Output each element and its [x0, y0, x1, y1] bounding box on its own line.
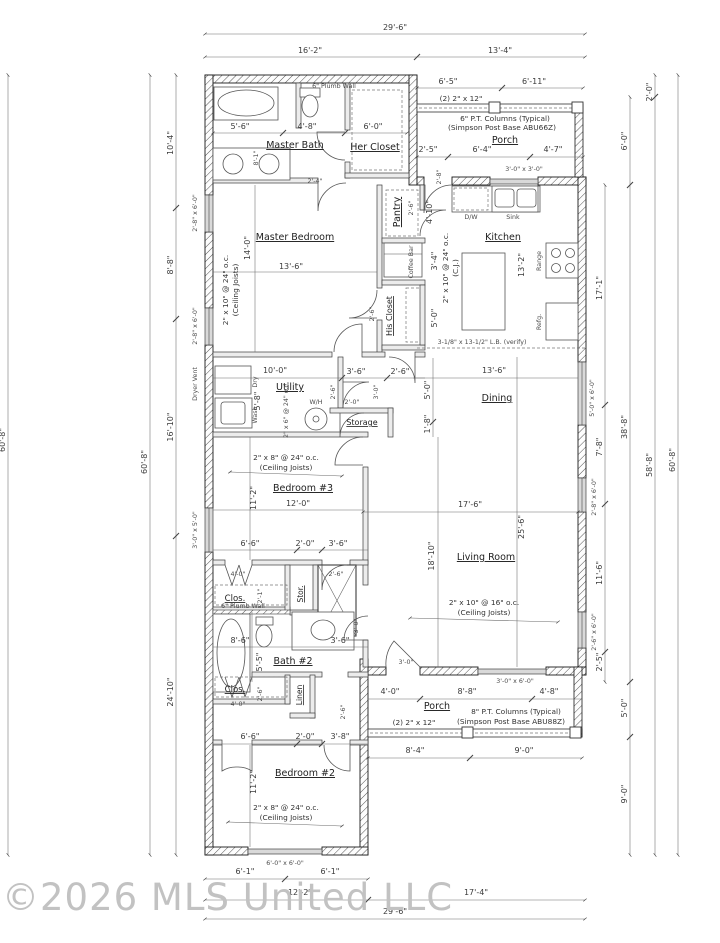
dim-pantry-4-10: 4'-10" [425, 200, 434, 224]
dim-rp-8-8: 8'-8" [458, 687, 477, 696]
dim-cb-6-6: 6'-6" [241, 732, 260, 741]
window-label-living-s: 3'-0" x 6'-0" [496, 678, 534, 685]
dim-bed2-11-2: 11'-2" [249, 770, 258, 794]
dim-bt-5-5: 5'-5" [255, 653, 264, 672]
fixture-range-label: Range [536, 251, 543, 271]
dim-hall-south-3-0: 3'-0" [353, 618, 360, 633]
note-kitchen-joists-2: (C.J.) [451, 259, 460, 277]
master-bathtub [214, 87, 278, 120]
note-kitchen-joists-1: 2" x 10" @ 24" o.c. [441, 233, 450, 303]
dim-front-porch-b: 6'-11" [522, 77, 546, 86]
kitchen-island [462, 253, 505, 330]
dim-dining-13-6: 13'-6" [482, 366, 506, 375]
dim-left-8-8: 8'-8" [166, 256, 175, 275]
floor-plan-drawing: 29'-6" 16'-2" 13'-4" 6'-5" 6'-11" (2) 2"… [0, 0, 720, 943]
dim-dining-17-6: 17'-6" [458, 500, 482, 509]
fixtures [213, 87, 586, 697]
bedroom2-double-door [222, 745, 252, 771]
dim-front-porch-e: 4'-7" [544, 145, 563, 154]
dim-right-2-5: 2'-5" [595, 653, 604, 672]
porch-column [572, 102, 583, 113]
fixture-wh-label: W/H [309, 399, 322, 406]
refrigerator [546, 303, 578, 340]
dim-his-closet-2-6: 2'-6" [369, 306, 376, 321]
room-bedroom3: Bedroom #3 [273, 483, 333, 494]
dim-bed3-11-2: 11'-2" [249, 486, 258, 510]
note-front-post-base: (Simpson Post Base ABU66Z) [448, 123, 556, 132]
bathtub-2 [213, 614, 250, 692]
dim-bed3-12-0: 12'-0" [286, 499, 310, 508]
dim-right-58-8: 58'-8" [645, 453, 654, 477]
note-bed3-joists-2: (Ceiling Joists) [260, 463, 313, 472]
dim-bottom-17-4: 17'-4" [464, 888, 488, 897]
dim-bottom-6-1a: 6'-1" [236, 867, 255, 876]
dim-v-1-8: 1'-8" [423, 415, 432, 434]
dim-his-closet-5-0: 5'-0" [430, 309, 439, 328]
dim-right-38-8: 38'-8" [620, 415, 629, 439]
window-label-dining: 5'-0" x 6'-0" [589, 379, 596, 417]
dim-left-16-10: 16'-10" [166, 412, 175, 441]
room-porch-rear: Porch [424, 701, 450, 712]
dim-bottom-8-4: 8'-4" [406, 746, 425, 755]
dim-right-7-8: 7'-8" [595, 438, 604, 457]
dim-c-6-6: 6'-6" [241, 539, 260, 548]
fixture-washer-label: Wash [252, 407, 259, 424]
dim-c-2-0: 2'-0" [296, 539, 315, 548]
window-label-3030: 3'-0" x 3'-0" [505, 166, 543, 173]
room-stor: Stor. [296, 585, 305, 602]
dim-c-2-1: 2'-1" [257, 588, 264, 603]
dim-cl-4-0: 4'-0" [231, 701, 246, 708]
porch-column [570, 727, 581, 738]
dim-cb-2-0: 2'-0" [296, 732, 315, 741]
note-rear-beam: (2) 2" x 12" [393, 718, 436, 727]
his-closet-shelving [406, 288, 420, 342]
room-storage: Storage [346, 418, 377, 427]
window-label-mbr-2: 2'-8" x 6'-0" [192, 307, 199, 345]
dim-bottom-6-1b: 6'-1" [321, 867, 340, 876]
note-bed3-joists-1: 2" x 8" @ 24" o.c. [253, 453, 319, 462]
floor-plan: 29'-6" 16'-2" 13'-4" 6'-5" 6'-11" (2) 2"… [0, 0, 720, 943]
dim-cl-2-6: 2'-6" [257, 686, 264, 701]
note-front-beam: (2) 2" x 12" [440, 94, 483, 103]
master-bedroom-door [334, 324, 362, 352]
dim-living-18-10: 18'-10" [427, 541, 436, 570]
dim-living-door-3-0: 3'-0" [399, 659, 414, 666]
window-label-living-e2: 2'-6" x 6'-0" [591, 613, 598, 651]
dim-mbr-14-0: 14'-0" [243, 236, 252, 260]
dim-front-porch-a: 6'-5" [439, 77, 458, 86]
dim-utility-10-0: 10'-0" [263, 366, 287, 375]
dim-right-17-1: 17'-1" [595, 276, 604, 300]
dim-right-6-0: 6'-0" [620, 132, 629, 151]
dim-bt-8-6: 8'-6" [231, 636, 250, 645]
dim-cb-3-8: 3'-8" [331, 732, 350, 741]
note-mbr-joists-2: (Ceiling Joists) [231, 264, 240, 317]
note-front-columns: 6" P.T. Columns (Typical) [460, 114, 550, 123]
master-bath-door [318, 183, 346, 211]
coffee-bar-counter [384, 243, 422, 277]
dim-c-2-6: 2'-6" [329, 571, 344, 578]
kitchen-counter [452, 186, 540, 212]
dim-bottom-9-0: 9'-0" [515, 746, 534, 755]
room-dining: Dining [482, 393, 513, 404]
dim-c-3-6: 3'-6" [329, 539, 348, 548]
dim-kitchen-door-2-8: 2'-8" [436, 169, 443, 184]
dim-front-porch-c: 2'-5" [419, 145, 438, 154]
room-bedroom2: Bedroom #2 [275, 768, 335, 779]
note-utility-joists: 2" x 6" @ 24" o.c. [282, 382, 290, 438]
dim-25-6: 25'-6" [517, 515, 526, 539]
dim-left-10-4: 10'-4" [166, 131, 175, 155]
kitchen-sink [492, 186, 538, 212]
note-rear-columns: 8" P.T. Columns (Typical) [471, 707, 561, 716]
fixture-fridge-label: Refg. [536, 314, 543, 330]
dim-bed2-door-2-6: 2'-6" [340, 704, 347, 719]
note-mbr-joists-1: 2" x 10" @ 24" o.c. [221, 255, 230, 325]
dim-left-60-8-outer: 60'-8" [0, 428, 7, 452]
window-label-bed3: 3'-0" x 5'-0" [192, 511, 199, 549]
dryer [215, 366, 251, 394]
dim-hall-3-6: 3'-6" [347, 367, 366, 376]
note-plumb-wall-top: 6" Plumb Wall [312, 83, 356, 90]
room-kitchen: Kitchen [485, 232, 521, 243]
window-label-bed2: 6'-0" x 6'-0" [266, 860, 304, 867]
room-living: Living Room [457, 552, 515, 563]
dim-utility-door-2-6: 2'-6" [330, 384, 337, 399]
dim-mb-6-0: 6'-0" [364, 122, 383, 131]
fixture-dw-label: D/W [464, 214, 478, 221]
dim-left-24-10: 24'-10" [166, 677, 175, 706]
dim-mb-4-8: 4'-8" [298, 122, 317, 131]
note-load-beam: 3-1/8" x 13-1/2" L.B. (verify) [438, 339, 527, 346]
dim-left-60-8: 60'-8" [140, 450, 149, 474]
dim-mb-8-1: 8'-1" [253, 150, 260, 165]
dim-right-2-0: 2'-0" [645, 83, 654, 102]
note-plumb-wall-mid: 6" Plumb Wall [221, 603, 265, 610]
room-bath2: Bath #2 [273, 656, 312, 667]
dim-mbr-13-6: 13'-6" [279, 262, 303, 271]
note-rear-post-base: (Simpson Post Base ABU88Z) [457, 717, 565, 726]
bedroom3-door [335, 437, 363, 465]
dim-v-5-0: 5'-0" [423, 381, 432, 400]
dim-bt-3-6: 3'-6" [331, 636, 350, 645]
fixture-sink-label: Sink [506, 214, 520, 221]
room-linen: Linen [295, 685, 304, 706]
dim-hall-3-0: 3'-0" [373, 384, 380, 399]
note-living-joists-1: 2" x 10" @ 16" o.c. [449, 598, 519, 607]
dim-hall-2-6: 2'-6" [391, 367, 410, 376]
dim-kitchen-13-2: 13'-2" [517, 253, 526, 277]
room-porch-front: Porch [492, 135, 518, 146]
room-coffee-bar: Coffee Bar [408, 245, 415, 279]
room-her-closet: Her Closet [350, 142, 400, 153]
window-label-mbr-1: 2'-8" x 6'-0" [192, 194, 199, 232]
master-vanity [213, 148, 290, 180]
master-toilet [300, 88, 320, 117]
washer [215, 398, 252, 428]
dim-top-total: 29'-6" [383, 23, 407, 32]
range [546, 243, 578, 278]
room-pantry: Pantry [392, 196, 403, 227]
watermark: ©2026 MLS United LLC [2, 876, 453, 919]
room-master-bedroom: Master Bedroom [256, 232, 334, 243]
water-heater [305, 408, 327, 430]
dim-right-60-8: 60'-8" [668, 448, 677, 472]
rear-porch-structure [368, 667, 582, 738]
dim-pantry-2-6: 2'-6" [408, 200, 415, 215]
porch-column [489, 102, 500, 113]
fixture-dryer-label: Dry [252, 376, 259, 387]
note-bed2-joists-1: 2" x 8" @ 24" o.c. [253, 803, 319, 812]
dim-storage-2-0: 2'-0" [345, 399, 360, 406]
dim-right-9-0: 9'-0" [620, 785, 629, 804]
room-utility: Utility [276, 382, 304, 393]
note-living-joists-2: (Ceiling Joists) [458, 608, 511, 617]
dim-c-4-0: 4'-0" [231, 571, 246, 578]
dim-right-11-6: 11'-6" [595, 561, 604, 585]
dim-top-right: 13'-4" [488, 46, 512, 55]
dim-rp-4-0: 4'-0" [381, 687, 400, 696]
dryer-vent-label: Dryer Vent [192, 367, 199, 401]
dim-rp-4-8: 4'-8" [540, 687, 559, 696]
room-his-closet: His Closet [385, 296, 394, 336]
porch-column [462, 727, 473, 738]
room-closet-bottom: Clos. [225, 685, 246, 695]
toilet-2 [256, 617, 273, 647]
dim-mb-door-2-4: 2'-4" [308, 178, 323, 185]
dim-mb-5-6: 5'-6" [231, 122, 250, 131]
room-master-bath: Master Bath [266, 140, 324, 151]
dim-front-porch-d: 6'-4" [473, 145, 492, 154]
dim-top-left: 16'-2" [298, 46, 322, 55]
window-label-living-e1: 2'-8" x 6'-0" [591, 478, 598, 516]
dim-right-5-0: 5'-0" [620, 699, 629, 718]
note-bed2-joists-2: (Ceiling Joists) [260, 813, 313, 822]
dim-coffee-3-4: 3'-4" [430, 252, 439, 271]
